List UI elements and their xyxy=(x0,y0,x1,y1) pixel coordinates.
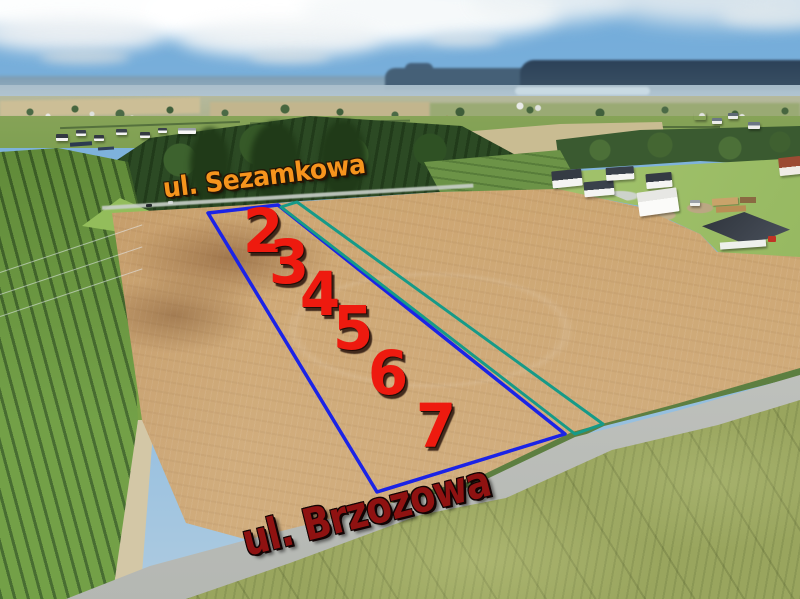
aerial-photo: 234567 ul. Sezamkowa ul. Brzozowa xyxy=(0,0,800,599)
plot-number-7: 7 xyxy=(416,396,456,457)
plot-number-6: 6 xyxy=(368,343,408,404)
